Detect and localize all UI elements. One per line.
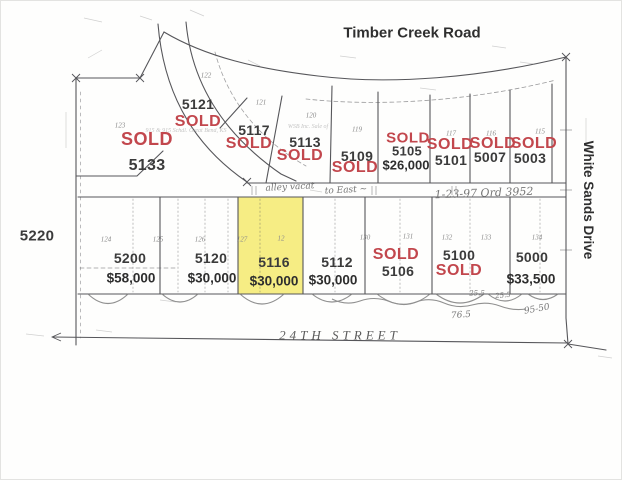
lot-5116-price: $30,000	[250, 274, 299, 288]
lot-5113-status: SOLD	[277, 148, 323, 164]
lot-5112-price: $30,000	[309, 273, 358, 287]
lot-5106-address: 5106	[382, 264, 414, 278]
plat-number: 134	[532, 235, 543, 242]
plat-number: 12	[278, 236, 285, 243]
street-label-white-sands-drive: White Sands Drive	[581, 141, 595, 260]
white-sands-drive-line	[566, 57, 568, 344]
plat-number: 121	[256, 100, 267, 107]
lot-5101-status: SOLD	[427, 137, 473, 153]
plat-number: 119	[352, 127, 362, 134]
plat-number: 130	[360, 235, 371, 242]
plat-number: 125	[153, 237, 164, 244]
lot-5112-address: 5112	[321, 255, 353, 269]
lot-5000-price: $33,500	[507, 272, 556, 286]
lot-5000-address: 5000	[516, 250, 548, 264]
lot-5200-address: 5200	[114, 251, 146, 265]
plat-number: 133	[481, 235, 492, 242]
road-setback-dashed	[306, 80, 556, 102]
plat-number: 131	[403, 234, 414, 241]
plat-number: 120	[306, 113, 317, 120]
handwritten-dimension: 25.5	[469, 291, 485, 298]
lot-5200-price: $58,000	[107, 271, 156, 285]
fine-print-note: 915 & 915 Schdl. Great Bend, KS	[145, 128, 226, 134]
plat-number: 117	[446, 131, 456, 138]
plat-number: 115	[535, 129, 545, 136]
adjacent-parcel-label: 5220	[20, 229, 55, 244]
lot-5120-address: 5120	[195, 251, 227, 265]
lot-5106-status: SOLD	[373, 247, 419, 263]
northwest-corner-lines	[76, 32, 164, 78]
lot-5121-address: 5121	[182, 97, 214, 111]
lot-5101-address: 5101	[435, 153, 467, 167]
lot-5100-status: SOLD	[436, 263, 482, 279]
lot-5105-price: $26,000	[383, 159, 430, 172]
plat-number: 123	[115, 123, 126, 130]
handwritten-dimension: 76.5	[451, 311, 472, 321]
street-label-24th-street: 24TH STREET	[279, 329, 401, 342]
handwritten-driveway-arcs	[88, 294, 558, 310]
plat-map: Timber Creek Road White Sands Drive 24TH…	[0, 0, 622, 480]
lot-5100-address: 5100	[443, 248, 475, 262]
lot-5109-status: SOLD	[332, 160, 378, 176]
lot-5133-address: 5133	[129, 158, 166, 174]
fine-print-note: WSB Inc. Sale of	[288, 124, 328, 130]
plat-linework	[0, 0, 622, 480]
lot-5117-status: SOLD	[226, 136, 272, 152]
plat-number: 122	[201, 73, 212, 80]
lot-5120-price: $30,000	[188, 271, 237, 285]
lot-5105-address: 5105	[392, 145, 422, 158]
lot-5003-address: 5003	[514, 151, 546, 165]
handwritten-ordinance-note: 1-23-97 Ord 3952	[434, 186, 533, 200]
plat-number: 116	[486, 131, 496, 138]
plat-number: 132	[442, 235, 453, 242]
plat-number: 124	[101, 237, 112, 244]
lot-5116-address: 5116	[258, 255, 290, 269]
lot-5007-address: 5007	[474, 150, 506, 164]
plat-number: 126	[195, 237, 206, 244]
plat-number: 127	[237, 237, 248, 244]
street-label-timber-creek-road: Timber Creek Road	[343, 26, 480, 41]
